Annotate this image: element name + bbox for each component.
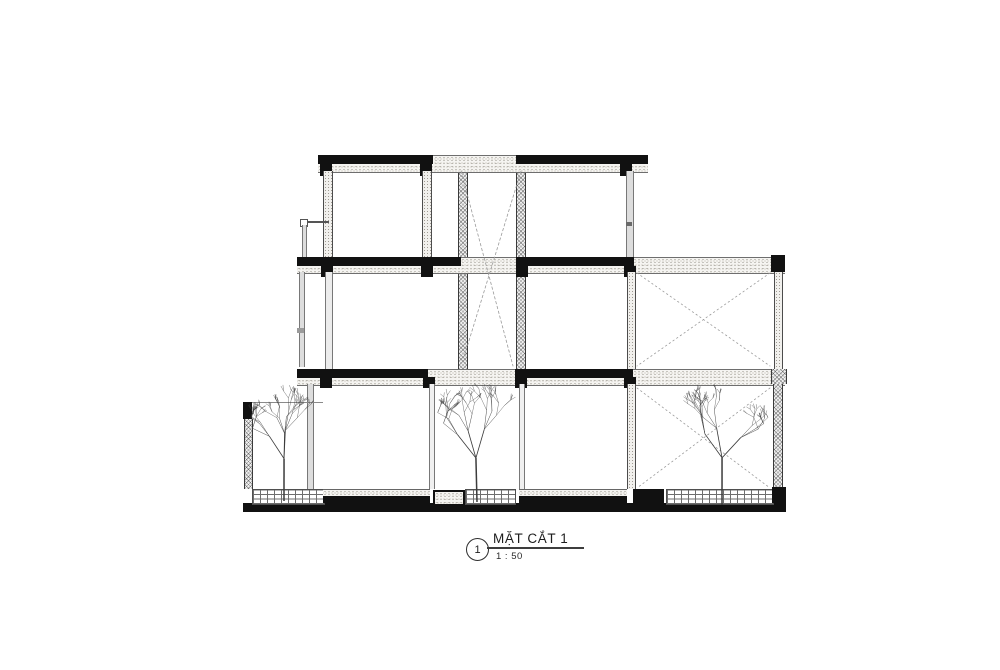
tree-branch [764,411,766,415]
floor-slab-1 [323,496,430,503]
tree-branch [457,401,461,404]
tree-branch [492,391,496,398]
tree-branch [490,393,494,396]
tree-branch [713,394,715,398]
tree-branch [295,394,298,402]
tree-branch [692,395,695,400]
tree-branch [255,404,260,406]
tree-branch [293,387,294,392]
tree-branch [471,391,474,395]
hidden-edge-line-4 [637,273,770,366]
tree-branch [747,413,754,417]
mid-floor-left-glazing [325,272,333,369]
tree-branch [470,387,475,391]
tree-branch [757,406,760,409]
end-wall-base [772,487,786,503]
tree-branch [253,408,256,411]
tree-branch [261,406,266,409]
tree-branch [479,393,481,398]
tree-branch [688,393,691,396]
tree-branch [491,398,492,412]
tree-branch [695,403,702,414]
tree-branch [441,399,444,403]
tree-branch [441,401,445,404]
tree-branch [687,400,694,404]
top-floor-right-glazing [626,171,634,257]
tree-branch [763,405,765,410]
tree-branch [696,397,703,401]
tree-branch [752,419,760,425]
tree-branch [277,397,279,402]
ground-floor-end-wall [773,384,783,488]
tree-branch [255,404,259,408]
tree-branch [438,404,441,412]
tree-branch [474,398,479,403]
tree-branch [695,391,696,400]
mid-beam-stub-b [421,266,433,277]
tree-branch [699,388,700,393]
tree-branch [254,407,258,409]
mid-floor-right-wall [627,272,636,369]
tree-branch [720,389,722,393]
tree-branch [458,400,460,404]
tree-branch [717,389,720,393]
tree-branch [469,391,472,395]
tree-branch [285,411,288,430]
tree-branch [693,392,696,396]
tree-branch [702,401,705,407]
tree-branch [699,393,700,402]
tree-branch [699,401,703,406]
tree-branch [766,414,768,418]
tree-branch [760,405,763,410]
tree-branch [288,390,291,398]
tree-branch [700,399,704,405]
mid-slab-cut-right [516,257,634,266]
tree-branch [452,404,457,409]
planter-middle [465,489,516,505]
tree-branch [493,390,496,395]
ground-ceiling-end-block [771,369,787,384]
title-block: 1 MẶT CẮT 1 1 : 50 [460,528,680,568]
tree-branch [446,389,447,395]
tree-branch [475,391,481,398]
tree-branch [444,402,450,407]
tree-branch [700,400,705,406]
tree-branch [694,390,698,394]
mid-floor-balcony-glass [299,272,305,367]
tree-branch [705,395,708,399]
tree-branch [696,386,699,391]
tree-branch [741,426,752,438]
tree-branch [763,410,765,418]
tree-branch [743,410,747,413]
tree-branch [707,413,717,428]
boundary-wall [244,419,253,489]
boundary-wall-cap [243,402,252,419]
tree-branch [481,398,487,410]
tree-branch [256,403,257,408]
tree-branch [443,403,449,408]
tree-branch [696,396,703,401]
tree-branch [766,413,768,417]
tree-branch [455,402,459,406]
tree-branch [479,393,480,398]
tree-branch [441,400,442,405]
tree-2 [438,383,516,502]
tree-branch [760,413,761,417]
tree-branch [459,391,461,397]
tree-branch [496,395,499,403]
tree-branch [704,397,709,400]
tree-branch [754,409,757,415]
ground-floor-front-glazing [307,384,314,489]
tree-branch [706,396,708,403]
tree-branch [456,392,461,395]
tree-branch [481,389,484,392]
tree-branch [741,429,759,438]
tree-branch [757,414,761,417]
tree-branch [714,400,719,410]
tree-branch [292,401,295,413]
tree-branch [761,417,764,424]
tree-branch [705,434,722,458]
tree-branch [705,397,707,401]
tree-branch [491,389,492,398]
tree-branch [483,387,485,391]
tree-branch [286,407,294,416]
tree-branch [464,402,470,412]
tree-branch [761,418,764,424]
tree-branch [289,385,291,390]
tree-branch [447,403,450,417]
tree-branch [764,406,765,411]
tree-branch [254,407,257,410]
tree-branch [447,417,458,435]
tree-branch [455,393,460,396]
tree-branch [762,409,763,413]
fence-top-line [252,402,323,403]
tree-branch [456,393,461,396]
tree-branch [468,414,472,431]
tree-branch [297,406,299,418]
tree-branch [439,400,443,403]
tree-branch [260,406,266,411]
tree-branch [697,386,701,391]
tree-branch [484,415,496,429]
top-floor-left-wall [323,171,333,257]
ground-ceiling-cut-left [297,369,428,378]
tree-branch [447,403,448,412]
tree-branch [254,414,260,422]
tree-branch [495,390,496,395]
ground-floor-right-wall [627,384,636,489]
tree-branch [759,414,761,418]
tree-branch [253,408,257,411]
tree-branch [487,386,490,390]
tree-branch [461,387,462,392]
tree-branch [761,409,762,413]
tree-branch [695,399,698,402]
tree-branch [470,395,471,402]
hidden-edge-line-6 [637,388,770,488]
tree-branch [468,431,476,458]
tree-branch [746,407,750,409]
tree-branch [295,394,299,398]
tree-branch [700,405,701,417]
tree-branch [701,417,705,434]
tree-branch [741,429,755,438]
tree-branch [283,391,288,398]
tree-branch [252,407,253,411]
tree-branch [446,397,447,403]
ground-floor-partition-1 [429,384,435,489]
tree-branch [701,414,705,433]
tree-branch [511,395,512,400]
tree-branch [450,395,456,403]
tree-branch [253,406,255,410]
tree-branch [300,394,301,399]
tree-branch [760,415,765,420]
tree-branch [444,404,449,409]
tree-branch [284,430,285,458]
tree-branch [689,391,690,397]
tree-branch [760,413,761,419]
tree-branch [285,414,292,431]
tree-branch [453,402,457,405]
detail-number: 1 [474,544,480,556]
tree-branch [266,411,277,417]
tree-branch [688,393,691,397]
tree-branch [683,400,687,403]
tree-branch [459,415,468,431]
tree-branch [270,406,272,411]
tree-branch [269,406,272,412]
tree-branch [440,394,444,397]
tree-branch [477,394,481,398]
roof-slab-cut-left [318,155,433,164]
tree-branch [438,405,441,412]
tree-branch [489,390,491,398]
tree-branch [448,407,456,412]
tree-branch [466,388,470,392]
tree-branch [466,403,472,414]
tree-branch [455,402,459,406]
tree-branch [496,406,504,416]
tree-branch [453,403,458,406]
mid-slab-cut-left [297,257,461,266]
tree-branch [692,392,696,396]
tree-branch [486,389,491,397]
tree-branch [266,404,269,406]
tree-branch [699,393,700,398]
tree-branch [750,409,754,415]
tree-branch [756,404,757,408]
tree-branch [686,399,687,404]
terrace-floor-block [633,489,664,503]
tree-branch [485,392,488,399]
tree-branch [253,416,257,428]
tree-branch [755,424,764,429]
tree-branch [254,407,257,410]
tree-3 [683,384,768,505]
tree-branch [285,417,287,434]
tree-branch [511,395,513,400]
tree-branch [439,399,443,403]
floor-slab-2 [519,496,627,503]
tree-branch [454,404,458,406]
tree-branch [717,428,722,458]
tree-branch [281,386,284,391]
tree-branch [253,406,255,411]
tree-branch [254,402,255,407]
tree-branch [291,392,294,399]
tree-branch [255,408,256,417]
tree-branch [439,400,443,403]
tree-branch [286,409,294,416]
tree-branch [695,401,702,414]
tree-branch [252,410,254,417]
tree-branch [706,391,707,396]
tree-branch [471,391,472,395]
tree-branch [686,393,688,398]
tree-branch [511,394,512,400]
tree-branch [446,404,447,417]
tree-branch [685,395,688,399]
tree-branch [300,403,304,405]
tree-branch [295,388,298,393]
tree-branch [459,393,462,397]
tree-branch [270,403,271,406]
tree-branch [455,393,460,395]
tree-branch [275,394,276,399]
tree-branch [300,396,301,402]
tree-branch [484,411,492,429]
tree-branch [294,403,296,410]
tree-branch [695,390,699,394]
tree-branch [699,397,700,405]
tree-branch [495,386,496,391]
top-floor-middle-wall [422,171,432,257]
tree-branch [293,388,296,392]
section-drawing [0,0,1000,670]
tree-branch [255,403,259,406]
tree-branch [701,399,705,406]
tree-branch [484,410,486,429]
drawing-sheet: 1 MẶT CẮT 1 1 : 50 [0,0,1000,670]
tree-branch [300,396,301,401]
tree-branch [488,393,493,396]
tree-branch [440,401,444,403]
tree-branch [684,397,688,400]
top-floor-right-rail-mark [626,222,632,226]
tree-branch [462,392,466,400]
tree-branch [294,388,295,393]
mid-slab-end-block [771,255,785,272]
tree-branch [716,389,717,397]
tree-branch [291,390,294,394]
tree-branch [468,392,471,395]
ground-floor-partition-2 [519,384,525,489]
tree-branch [477,393,481,397]
tree-branch [441,398,443,402]
tree-branch [269,436,284,458]
tree-branch [487,391,491,398]
balcony-rail-post [302,225,307,257]
tree-branch [446,395,448,404]
tree-branch [253,428,270,436]
tree-branch [444,411,448,423]
tree-branch [277,418,285,434]
tree-branch [294,388,295,393]
tree-branch [301,395,304,399]
tree-branch [252,410,254,417]
tree-branch [462,400,464,412]
tree-branch [701,405,702,417]
tree-branch [754,409,755,418]
tree-branch [759,413,760,417]
title-underline [487,547,584,549]
tree-branch [292,406,300,414]
tree-branch [284,433,285,458]
tree-branch [452,404,457,409]
tree-branch [279,418,284,433]
tree-branch [444,411,448,423]
tree-branch [476,429,484,458]
tree-branch [703,395,706,399]
tree-branch [254,407,258,410]
tree-branch [262,411,266,413]
tree-branch [253,407,254,411]
tree-branch [303,395,304,399]
tree-branch [273,395,275,399]
tree-branch [458,435,476,458]
tree-branch [693,393,696,397]
tree-branch [457,399,458,404]
tree-branch [504,400,510,406]
tree-branch [294,393,295,401]
tree-branch [470,397,477,402]
detail-number-bubble: 1 [466,538,489,561]
tree-branch [256,409,261,416]
tree-branch [447,398,451,402]
tree-branch [760,413,761,417]
tree-branch [760,417,762,423]
tree-branch [447,390,450,395]
tree-branch [444,423,458,435]
linework-overlay [0,0,1000,670]
tree-branch [466,390,470,392]
tree-branch [285,418,297,431]
tree-branch [297,410,304,418]
tree-branch [707,403,708,413]
tree-branch [720,389,721,393]
tree-branch [714,397,716,410]
tree-branch [703,417,717,428]
tree-branch [479,388,481,397]
tree-branch [696,387,701,391]
tree-branch [705,392,706,396]
mid-beam-stub-c [516,266,528,277]
tree-branch [698,393,700,398]
tree-branch [458,395,462,397]
tree-branch [755,422,763,429]
drawing-title: MẶT CẮT 1 [493,531,568,546]
tree-branch [272,412,279,418]
planter-right [666,489,774,505]
tree-branch [758,418,764,429]
tree-branch [276,397,278,401]
